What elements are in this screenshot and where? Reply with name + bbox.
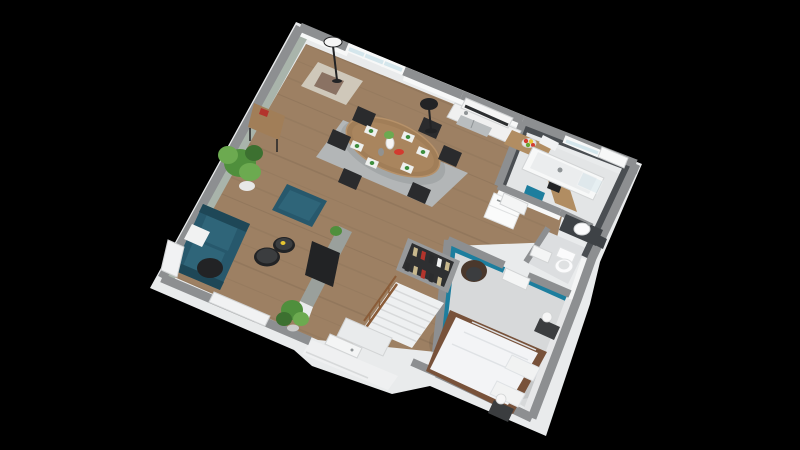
kitchen-faucet (464, 111, 468, 115)
plant-2-pot (287, 325, 299, 332)
plant-1-leaf-b (245, 145, 263, 161)
partition-plant (330, 226, 342, 236)
napkin-2 (355, 144, 360, 148)
floor-lamp-base (332, 79, 342, 83)
nightstand-lamp-1 (542, 312, 552, 322)
floor-plan-canvas (0, 0, 800, 450)
plant-2-leaf-a (276, 312, 292, 326)
table-flowers (384, 131, 394, 139)
floor-plan-3d-render (0, 0, 800, 450)
plant-2-leaf-b (293, 312, 309, 326)
table-jug (378, 148, 384, 156)
fruit-green (526, 143, 530, 147)
toilet-seat (559, 261, 570, 270)
napkin-6 (405, 166, 410, 170)
coffee-table-decor (281, 241, 286, 245)
floor-lamp-shade (324, 37, 342, 47)
fruit-red-1 (524, 139, 528, 143)
dining-floor-lamp-base (425, 129, 437, 134)
napkin-4 (406, 135, 411, 139)
fruit-yellow (529, 139, 533, 143)
table-bowl (394, 149, 404, 155)
bedroom-chair-seat (466, 267, 482, 281)
coffee-table-large-top (257, 249, 278, 264)
bath-faucet (558, 168, 563, 173)
plant-1-pot (239, 181, 255, 191)
napkin-5 (421, 150, 426, 154)
napkin-1 (369, 129, 374, 133)
napkin-3 (370, 161, 375, 165)
plant-1-leaf-c (239, 163, 261, 181)
entry-door-handle (351, 349, 354, 352)
vanity-tap (587, 222, 591, 226)
fruit-red-2 (531, 143, 535, 147)
side-pouf (197, 258, 223, 278)
plant-1-leaf-a (218, 146, 238, 164)
nightstand-lamp-2 (496, 394, 506, 404)
